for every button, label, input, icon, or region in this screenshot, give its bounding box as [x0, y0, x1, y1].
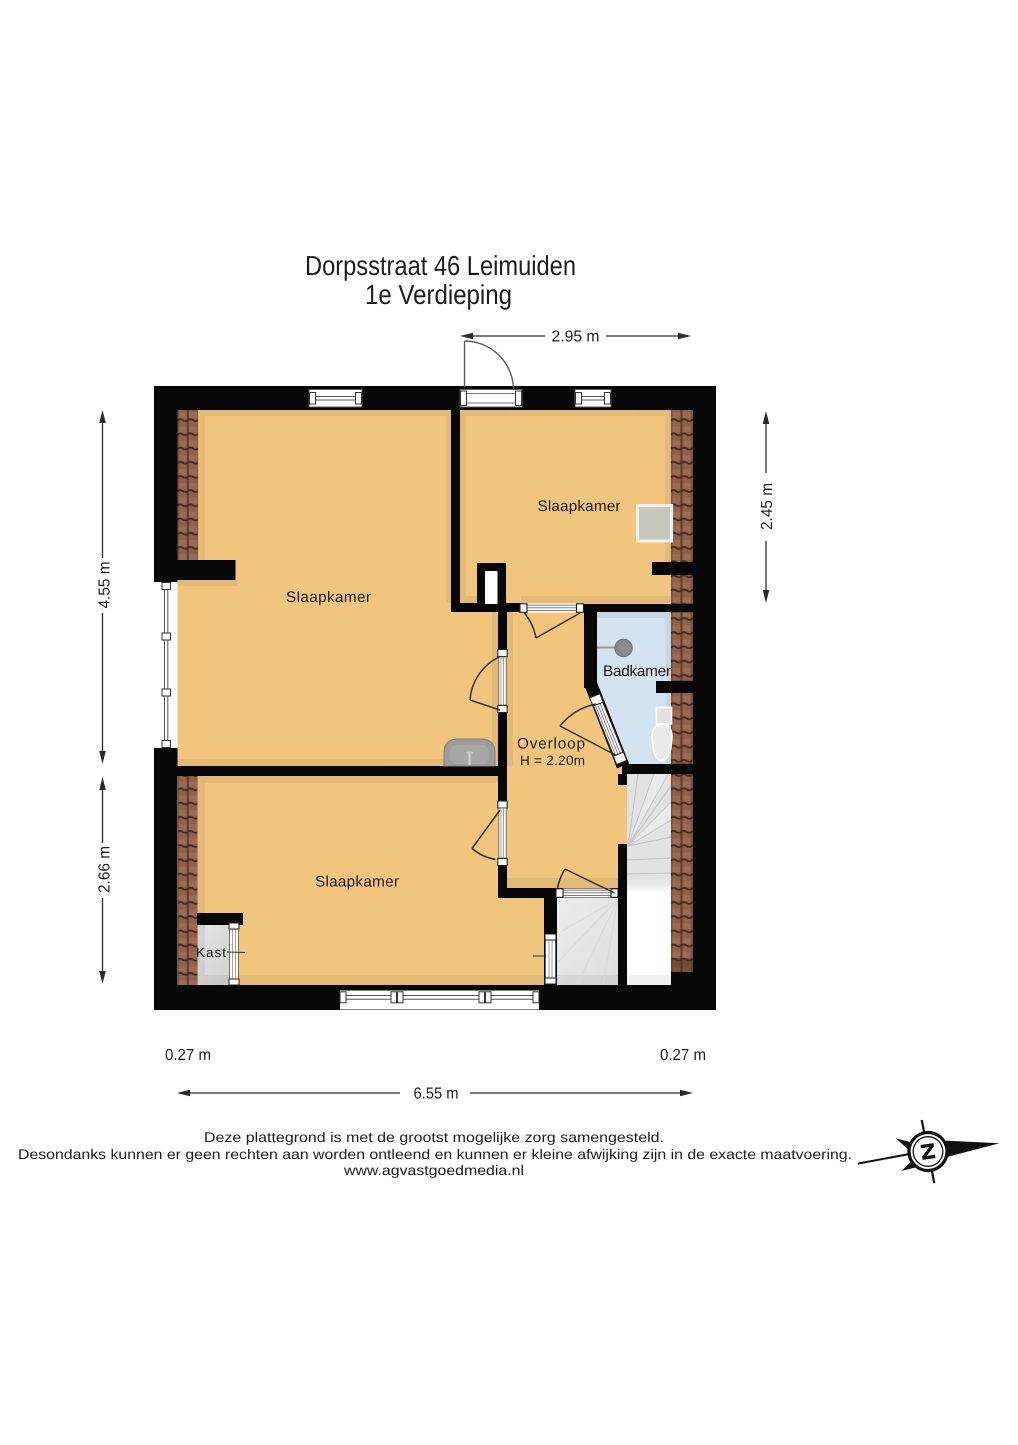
svg-text:Deze plattegrond is met de gro: Deze plattegrond is met de grootst mogel… — [204, 1129, 664, 1145]
svg-text:4.55 m: 4.55 m — [97, 562, 114, 609]
svg-text:2.95 m: 2.95 m — [552, 329, 600, 346]
svg-text:www.agvastgoedmedia.nl: www.agvastgoedmedia.nl — [343, 1162, 524, 1178]
svg-text:Slaapkamer: Slaapkamer — [538, 498, 621, 515]
svg-text:Slaapkamer: Slaapkamer — [286, 589, 371, 606]
svg-text:Dorpsstraat 46 Leimuiden: Dorpsstraat 46 Leimuiden — [305, 250, 576, 281]
svg-text:2.45 m: 2.45 m — [759, 483, 776, 530]
svg-text:2.66 m: 2.66 m — [97, 846, 114, 893]
svg-text:0.27 m: 0.27 m — [660, 1047, 706, 1064]
svg-text:1e Verdieping: 1e Verdieping — [365, 279, 512, 310]
svg-text:Badkamer: Badkamer — [603, 663, 671, 680]
svg-text:Kast: Kast — [196, 945, 226, 960]
svg-text:Slaapkamer: Slaapkamer — [315, 874, 399, 891]
svg-text:Desondanks kunnen er geen rech: Desondanks kunnen er geen rechten aan wo… — [18, 1146, 852, 1162]
svg-text:6.55 m: 6.55 m — [414, 1086, 459, 1103]
svg-text:0.27 m: 0.27 m — [165, 1047, 211, 1064]
svg-text:Overloop: Overloop — [517, 736, 585, 753]
svg-text:H = 2.20m: H = 2.20m — [520, 753, 585, 768]
